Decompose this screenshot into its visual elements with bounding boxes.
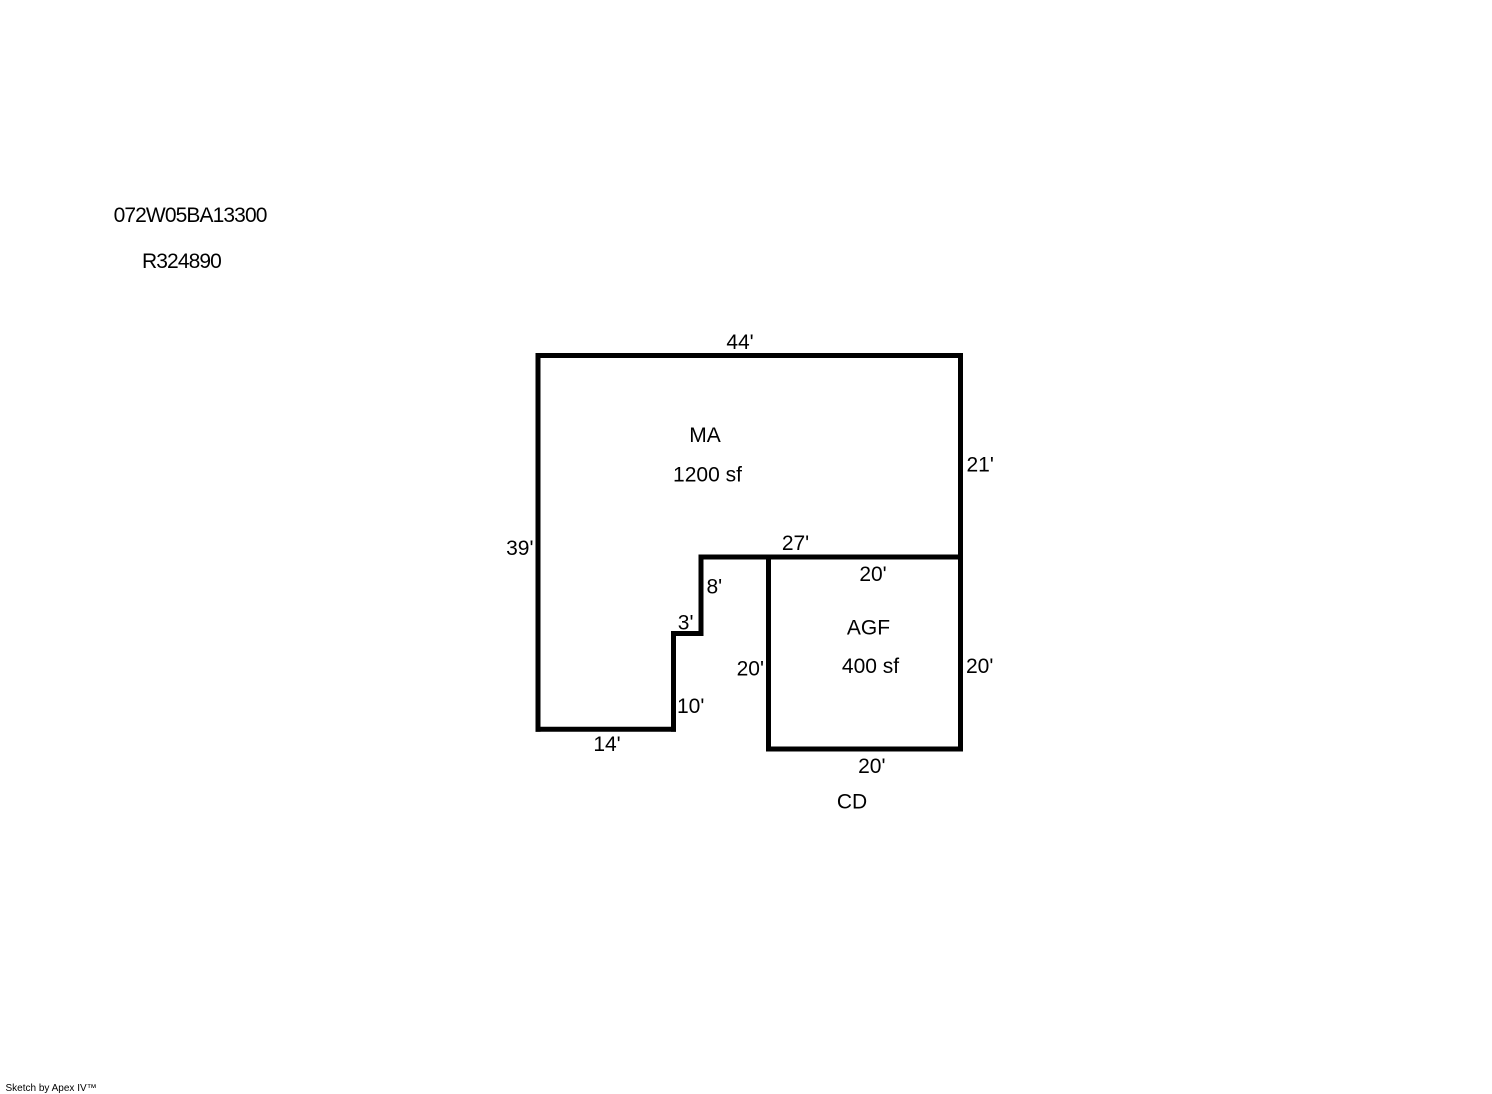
svg-text:39': 39': [506, 537, 533, 560]
svg-text:44': 44': [726, 331, 753, 354]
svg-text:10': 10': [677, 695, 704, 718]
svg-text:Sketch by Apex IV™: Sketch by Apex IV™: [6, 1083, 97, 1094]
svg-text:3': 3': [678, 612, 694, 635]
svg-text:400 sf: 400 sf: [842, 655, 899, 678]
svg-text:R324890: R324890: [142, 250, 221, 273]
svg-text:27': 27': [782, 532, 809, 555]
svg-text:20': 20': [858, 755, 885, 778]
svg-text:20': 20': [737, 658, 764, 681]
svg-text:MA: MA: [689, 424, 721, 447]
svg-text:20': 20': [966, 655, 993, 678]
svg-text:8': 8': [707, 576, 723, 599]
svg-text:14': 14': [593, 733, 620, 756]
svg-text:AGF: AGF: [847, 617, 890, 640]
svg-text:1200 sf: 1200 sf: [673, 464, 742, 487]
svg-text:CD: CD: [837, 791, 867, 814]
svg-text:072W05BA13300: 072W05BA13300: [114, 204, 267, 227]
svg-text:21': 21': [967, 454, 994, 477]
svg-text:20': 20': [859, 563, 886, 586]
